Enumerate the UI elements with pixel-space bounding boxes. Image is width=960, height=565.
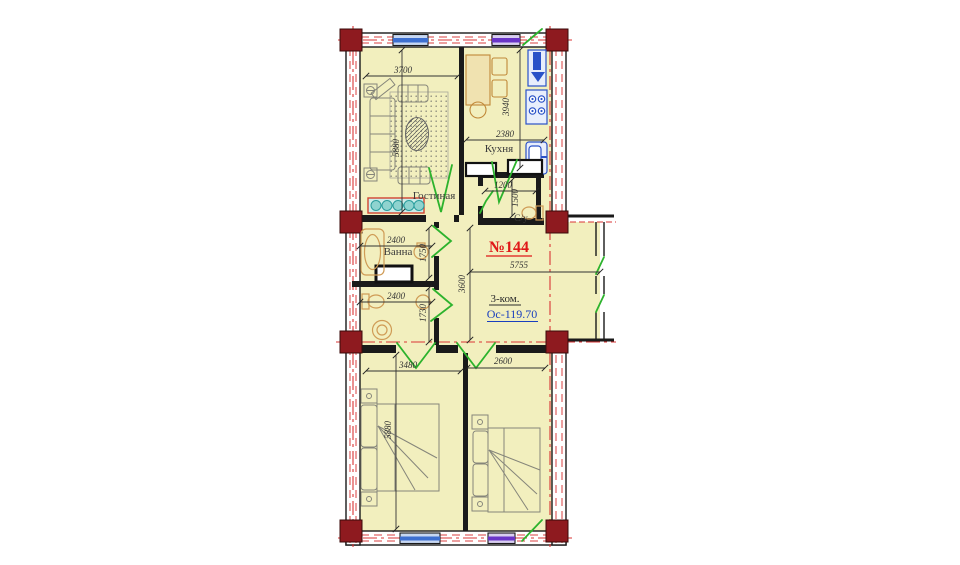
dim-bedroom2-width: 2600 xyxy=(494,356,513,366)
window-top-blue xyxy=(393,35,428,46)
dim-kitchen-width: 2380 xyxy=(496,129,515,139)
dim-bedroom1-width: 3480 xyxy=(398,360,418,370)
dim-living-width: 3700 xyxy=(393,65,413,75)
floor-plan-canvas: 3700 5880 2380 3940 1200 1500 2400 1750 … xyxy=(0,0,960,565)
dim-kitchen-height: 3940 xyxy=(501,98,511,118)
dim-bath-width: 2400 xyxy=(387,235,406,245)
dim-hall-height: 3600 xyxy=(457,275,467,295)
dim-bedroom1-height: 5880 xyxy=(383,421,393,440)
stove-icon xyxy=(526,90,547,124)
dim-hall-width: 5755 xyxy=(510,260,529,270)
window-top-purple xyxy=(492,35,520,46)
living-room-label: Гостиная xyxy=(413,190,456,202)
dim-wc-width: 1200 xyxy=(494,180,513,190)
apartment-type: 3-ком. xyxy=(491,293,520,305)
dim-bath-height: 1750 xyxy=(418,244,428,263)
dim-wc-height: 1500 xyxy=(510,189,520,208)
wc-label: С/у xyxy=(514,214,528,224)
dim-living-height: 5880 xyxy=(391,139,401,158)
window-bottom-purple xyxy=(488,533,515,544)
window-bottom-blue xyxy=(400,533,440,544)
kitchen-label: Кухня xyxy=(485,143,513,155)
dim-toilet-height: 1730 xyxy=(418,304,428,323)
floor-plan: 3700 5880 2380 3940 1200 1500 2400 1750 … xyxy=(0,0,960,565)
kitchen-sink-icon xyxy=(528,50,546,86)
table-oval xyxy=(406,118,429,151)
apartment-number: №144 xyxy=(489,239,529,256)
dim-toilet-width: 2400 xyxy=(387,291,406,301)
bath-label: Ванна xyxy=(384,246,413,258)
apartment-area: Ос-119.70 xyxy=(487,307,538,321)
